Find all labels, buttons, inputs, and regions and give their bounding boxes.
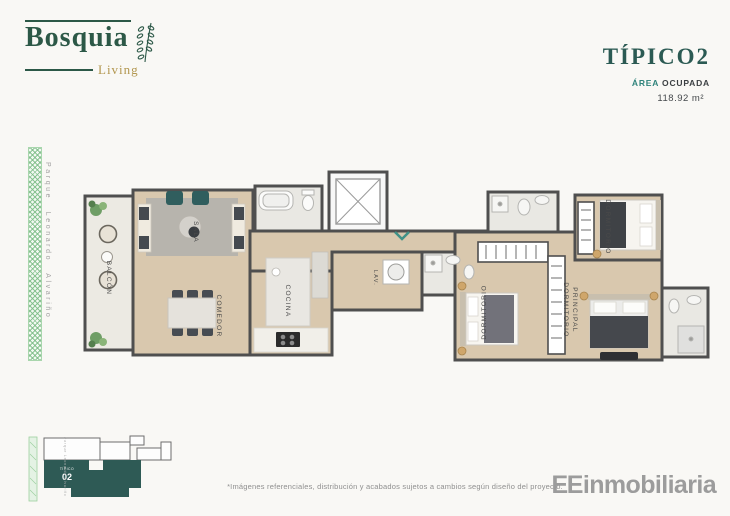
floorplan-poster: Bosquia Living T [0,0,730,516]
label-sala: SALA [192,221,199,243]
floor-plan: BALCÓN SALA COMEDOR COCINA LAV. DORMITOR… [80,160,715,365]
brand-name: Bosquia [25,23,129,53]
area-value: 118.92 m² [603,93,710,104]
key-plan: TÍPICO 02 [25,428,175,510]
keyplan-street-name: Parque Leonardo Alvariño [63,437,67,501]
comedor-furniture [168,290,216,336]
label-dormitorio-2: DORMITORIO [604,199,611,254]
elevator-shaft [336,179,380,224]
agency-logo: EEinmobiliaria [552,471,716,500]
brand-tagline: Living [98,62,139,78]
keyplan-unit-highlight [44,460,141,497]
park-pattern-strip [28,147,42,361]
label-dormitorio-principal-2: PRINCIPAL [571,287,578,333]
area-occupied-label: ÁREA OCUPADA [603,78,710,88]
label-lavanderia: LAV. [372,270,378,286]
label-dormitorio-principal-1: DORMITORIO [562,282,569,337]
leaf-branch-icon [131,21,155,63]
label-comedor: COMEDOR [215,294,222,337]
label-balcon: BALCÓN [105,261,114,296]
sala-furniture [138,191,245,256]
street-name: Parque Leonardo Alvariño [44,162,51,362]
bathroom1-fixtures [259,190,314,211]
label-cocina: COCINA [284,284,291,317]
unit-title: TÍPICO2 [603,44,710,70]
logo-bottom-rule [25,69,93,71]
bedroom2-furniture [578,200,661,258]
bosquia-logo: Bosquia Living [25,20,160,78]
label-dormitorio-1: DORMITORIO [481,284,488,339]
unit-info: TÍPICO2 ÁREA OCUPADA 118.92 m² [603,44,710,104]
keyplan-unit-label: TÍPICO [60,467,74,471]
laundry-fixtures [383,260,409,284]
